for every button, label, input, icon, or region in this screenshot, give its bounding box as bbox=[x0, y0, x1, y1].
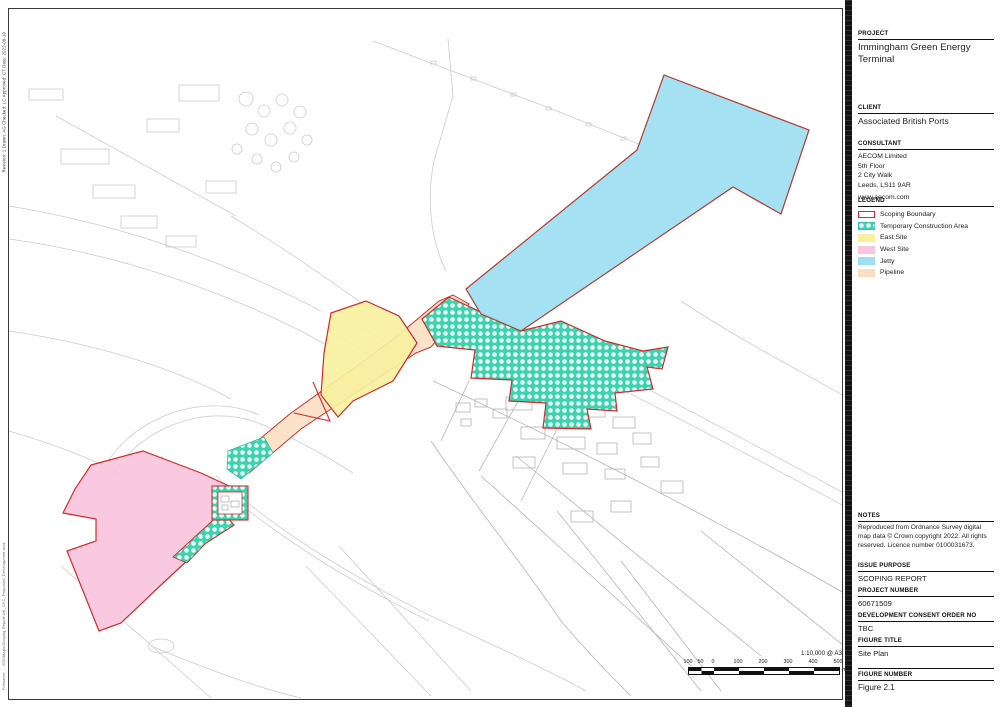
notes-text: Reproduced from Ordnance Survey digital … bbox=[858, 524, 994, 551]
scale-bar: 1:10,000 @ A3 100 50 0 100 200 300 400 5… bbox=[686, 650, 852, 684]
east-site-swatch bbox=[858, 234, 875, 242]
temporary-construction-area-polygon bbox=[422, 297, 668, 429]
consultant-label: CONSULTANT bbox=[858, 140, 994, 150]
filename-marginalia: Filename: ...\GIS\Maps\Scoping Report\UK… bbox=[2, 290, 6, 690]
issue-purpose-value: SCOPING REPORT bbox=[858, 574, 994, 583]
figure-number-value: Figure 2.1 bbox=[858, 683, 994, 692]
east-site-polygon bbox=[321, 301, 417, 417]
figure-number-section: FIGURE NUMBER Figure 2.1 bbox=[858, 668, 994, 692]
figure-title-value: Site Plan bbox=[858, 649, 994, 658]
legend-item-label: Temporary Construction Area bbox=[880, 223, 968, 230]
project-section: PROJECT Immingham Green Energy Terminal bbox=[858, 30, 994, 66]
legend-item-label: Scoping Boundary bbox=[880, 211, 936, 218]
compound-box bbox=[212, 486, 248, 520]
legend-item-pipeline: Pipeline bbox=[858, 267, 994, 279]
map-canvas bbox=[8, 8, 843, 700]
jetty-swatch bbox=[858, 257, 875, 265]
notes-section: NOTES Reproduced from Ordnance Survey di… bbox=[858, 512, 994, 551]
west-site-polygon bbox=[63, 451, 247, 631]
west-site-swatch bbox=[858, 246, 875, 254]
dco-section: DEVELOPMENT CONSENT ORDER NO TBC bbox=[858, 612, 994, 633]
project-number-section: PROJECT NUMBER 60671509 bbox=[858, 587, 994, 608]
issue-purpose-section: ISSUE PURPOSE SCOPING REPORT bbox=[858, 562, 994, 583]
client-section: CLIENT Associated British Ports bbox=[858, 104, 994, 126]
client-name: Associated British Ports bbox=[858, 116, 994, 126]
figure-number-label: FIGURE NUMBER bbox=[858, 671, 994, 681]
dco-label: DEVELOPMENT CONSENT ORDER NO bbox=[858, 612, 994, 622]
figure-title-section: FIGURE TITLE Site Plan bbox=[858, 637, 994, 658]
revision-marginalia: Revision: 1 Drawn: AG Checked: LC Approv… bbox=[2, 13, 7, 173]
legend-item-west-site: West Site bbox=[858, 244, 994, 256]
dco-value: TBC bbox=[858, 624, 994, 633]
project-label: PROJECT bbox=[858, 30, 994, 40]
project-number-label: PROJECT NUMBER bbox=[858, 587, 994, 597]
scale-ratio-text: 1:10,000 @ A3 bbox=[801, 650, 842, 657]
scale-bar-graphic bbox=[688, 667, 840, 675]
site-plan-map bbox=[9, 9, 842, 699]
temporary-construction-area-swatch bbox=[858, 222, 875, 230]
scale-tick: 400 bbox=[805, 659, 821, 665]
consultant-address-line: 5th Floor bbox=[858, 162, 994, 172]
client-label: CLIENT bbox=[858, 104, 994, 114]
scale-tick: 500 bbox=[830, 659, 846, 665]
scale-tick: 100 bbox=[730, 659, 746, 665]
scale-tick: 0 bbox=[705, 659, 721, 665]
issue-purpose-label: ISSUE PURPOSE bbox=[858, 562, 994, 572]
consultant-section: CONSULTANT AECOM Limited 5th Floor 2 Cit… bbox=[858, 140, 994, 203]
jetty-polygon bbox=[466, 75, 809, 331]
legend-item-label: West Site bbox=[880, 246, 909, 253]
legend-label: LEGEND bbox=[858, 197, 994, 207]
legend-item-label: Pipeline bbox=[880, 269, 904, 276]
legend-section: LEGEND Scoping Boundary Temporary Constr… bbox=[858, 197, 994, 279]
consultant-address-line: Leeds, LS11 9AR bbox=[858, 181, 994, 191]
legend-item-scoping-boundary: Scoping Boundary bbox=[858, 209, 994, 221]
scoping-boundary-swatch bbox=[858, 211, 875, 218]
consultant-address-line: AECOM Limited bbox=[858, 152, 994, 162]
title-block: PROJECT Immingham Green Energy Terminal … bbox=[852, 0, 1000, 707]
tank-farm-icons bbox=[232, 92, 312, 172]
legend-item-label: Jetty bbox=[880, 258, 894, 265]
industrial-building-outlines bbox=[29, 61, 626, 247]
disclaimer-strip bbox=[845, 0, 852, 707]
legend-item-jetty: Jetty bbox=[858, 255, 994, 267]
figure-title-label: FIGURE TITLE bbox=[858, 637, 994, 647]
scale-tick: 300 bbox=[780, 659, 796, 665]
legend-item-temporary-construction-area: Temporary Construction Area bbox=[858, 221, 994, 233]
pipeline-swatch bbox=[858, 269, 875, 277]
legend-item-east-site: East Site bbox=[858, 232, 994, 244]
project-number-value: 60671509 bbox=[858, 599, 994, 608]
project-title: Immingham Green Energy Terminal bbox=[858, 42, 994, 66]
legend-item-label: East Site bbox=[880, 234, 907, 241]
notes-label: NOTES bbox=[858, 512, 994, 522]
consultant-address-line: 2 City Walk bbox=[858, 171, 994, 181]
village-linework bbox=[431, 381, 842, 696]
scale-tick: 200 bbox=[755, 659, 771, 665]
drawing-sheet: Revision: 1 Drawn: AG Checked: LC Approv… bbox=[0, 0, 1000, 707]
